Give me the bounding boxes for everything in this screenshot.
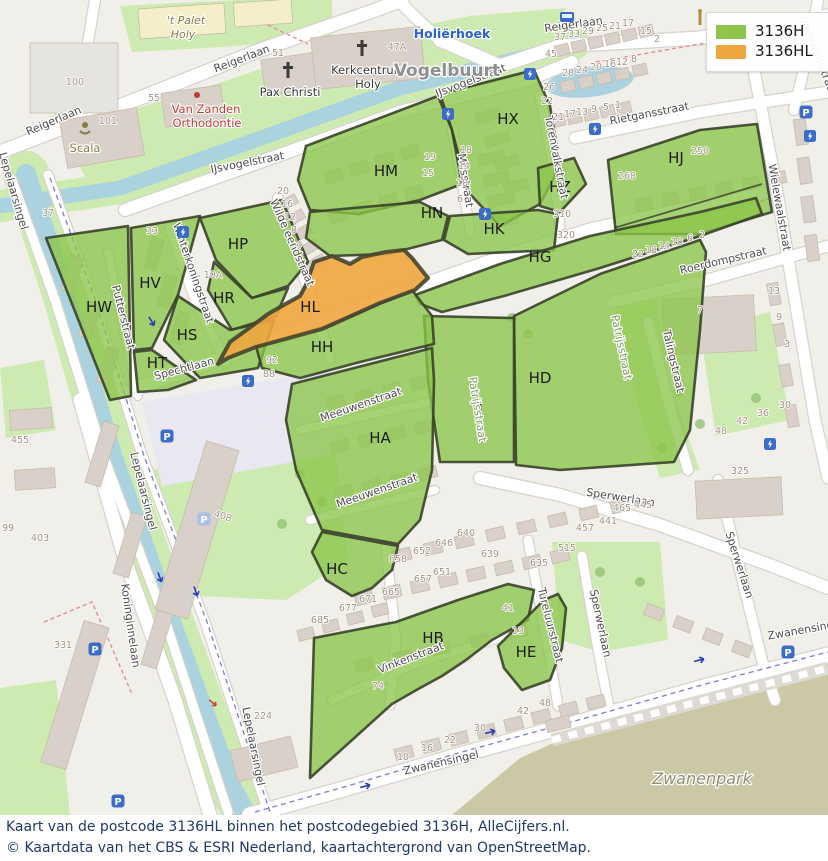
map-container: HWHVHPHRHSHTHMHXHZHNHKHJHGHDHHHHAHCHBHEH… <box>0 0 828 815</box>
house-number: 42 <box>736 416 748 427</box>
house-number: 19 <box>424 152 436 163</box>
house-number: 9 <box>776 312 782 323</box>
house-number: 325 <box>731 466 749 477</box>
poi-label: Holy <box>355 77 381 91</box>
house-number: 685 <box>311 615 329 626</box>
house-number: 331 <box>54 640 72 651</box>
ev-charging-icon <box>442 108 454 120</box>
house-number: 652 <box>413 546 431 557</box>
poi-label: Orthodontie <box>172 116 241 130</box>
caption-line-2: © Kaartdata van het CBS & ESRI Nederland… <box>6 838 828 859</box>
house-number: 22 <box>541 96 553 107</box>
area-label-HV: HV <box>139 274 161 292</box>
legend-label: 3136HL <box>755 43 813 60</box>
house-number: 10A <box>204 270 223 281</box>
parking-icon: P <box>89 643 102 656</box>
house-number: 100 <box>66 77 84 88</box>
house-number: 51 <box>272 48 284 59</box>
house-number: 99 <box>2 523 14 534</box>
building <box>9 408 52 431</box>
poi-label: Holy <box>171 28 196 41</box>
area-label-HG: HG <box>529 248 552 266</box>
house-number: 92 <box>266 355 278 366</box>
legend-swatch-green <box>716 25 746 39</box>
house-number: 646 <box>435 538 453 549</box>
ev-charging-icon <box>764 438 776 450</box>
house-number: 3 <box>784 339 790 350</box>
ev-charging-icon <box>177 226 189 238</box>
bus-stop-icon <box>560 12 574 22</box>
house-number: 48 <box>539 698 551 709</box>
poi-label: 't Palet <box>167 14 206 27</box>
parking-icon: P <box>112 795 125 808</box>
house-number: 14 <box>458 161 470 172</box>
building <box>233 0 293 27</box>
house-number: 515 <box>558 543 576 554</box>
area-label-HA: HA <box>369 429 391 447</box>
house-number: 17 <box>564 109 576 120</box>
house-number: 16 <box>604 59 616 70</box>
house-number: 17 <box>622 18 634 29</box>
poi-label: Pax Christi <box>260 85 321 99</box>
parking-letter: P <box>200 515 207 526</box>
house-number: 9 <box>591 104 597 115</box>
poi-dot <box>194 92 200 98</box>
poi-label: Zwanenpark <box>651 769 753 788</box>
building <box>695 477 783 519</box>
house-number: 268 <box>618 171 636 182</box>
house-number: 224 <box>254 711 272 722</box>
area-label-HD: HD <box>529 369 552 387</box>
signal-pole-icon <box>698 9 702 25</box>
house-number: 20 <box>277 186 289 197</box>
house-number: 2 <box>699 230 705 241</box>
house-number: 14 <box>658 241 670 252</box>
house-number: 8 <box>291 225 297 236</box>
poi-label: Holiërhoek <box>414 26 491 41</box>
house-number: 10 <box>397 752 409 763</box>
house-number: 12 <box>284 212 296 223</box>
area-label-HH: HH <box>311 338 334 356</box>
house-number: 20 <box>590 62 602 73</box>
house-number: 33 <box>146 226 158 237</box>
house-number: 5 <box>603 102 609 113</box>
house-number: 48 <box>715 426 727 437</box>
house-number: 18 <box>460 145 472 156</box>
house-number: 658 <box>389 554 407 565</box>
legend-label: 3136H <box>755 23 804 40</box>
house-number: 41 <box>502 603 514 614</box>
house-number: 29 <box>582 26 594 37</box>
house-number: 6 <box>457 194 463 205</box>
house-number: 665 <box>382 587 400 598</box>
ev-charging-icon <box>804 130 816 142</box>
tree <box>595 567 605 577</box>
house-number: 15 <box>640 26 652 37</box>
house-number: 13 <box>576 107 588 118</box>
house-number: 74 <box>372 681 384 692</box>
parking-letter: P <box>114 797 121 808</box>
house-number: 28 <box>562 68 574 79</box>
house-number: 25 <box>596 23 608 34</box>
house-number: 250 <box>691 146 709 157</box>
house-number: 15 <box>422 168 434 179</box>
area-label-HS: HS <box>177 326 198 344</box>
house-number: 677 <box>339 603 357 614</box>
house-number: 441 <box>599 516 617 527</box>
house-number: 671 <box>359 594 377 605</box>
parking-letter: P <box>163 432 170 443</box>
tree <box>635 577 645 587</box>
house-number: 22 <box>444 735 456 746</box>
house-number: 21 <box>552 112 564 123</box>
parking-icon: P <box>161 430 174 443</box>
house-number: 37 <box>554 32 566 43</box>
area-label-HM: HM <box>374 162 398 180</box>
house-number: 657 <box>414 574 432 585</box>
house-number: 320 <box>557 230 575 241</box>
building <box>14 468 55 491</box>
parking-letter: P <box>91 645 98 656</box>
tree <box>695 419 705 429</box>
house-number: 24 <box>576 65 588 76</box>
house-number: 22 <box>632 249 644 260</box>
ev-charging-icon <box>524 68 536 80</box>
house-number: 47A <box>388 42 407 53</box>
house-number: 26 <box>543 82 555 93</box>
area-label-HP: HP <box>228 235 248 253</box>
house-number: 465 <box>613 503 631 514</box>
map-caption: Kaart van de postcode 3136HL binnen het … <box>0 815 828 861</box>
area-label-HL: HL <box>300 298 320 316</box>
area-label-HW: HW <box>86 298 112 316</box>
parking-letter: P <box>784 648 791 659</box>
parking-icon: P <box>782 646 795 659</box>
tree <box>277 519 287 529</box>
house-number: 4 <box>296 240 302 251</box>
house-number: 457 <box>576 523 594 534</box>
house-number: 640 <box>457 528 475 539</box>
house-number: 33 <box>568 29 580 40</box>
parking-letter: P <box>802 108 809 119</box>
house-number: 13 <box>512 626 524 637</box>
house-number: 1 <box>615 100 621 111</box>
house-number: 639 <box>481 549 499 560</box>
house-number: 30 <box>779 400 791 411</box>
parking-icon: P <box>800 106 813 119</box>
house-number: 455 <box>11 435 29 446</box>
house-number: 310 <box>553 209 571 220</box>
house-number: 30 <box>474 723 486 734</box>
house-number: 16 <box>281 199 293 210</box>
area-label-HK: HK <box>483 220 505 238</box>
house-number: 445 <box>634 500 652 511</box>
house-number: 10 <box>456 178 468 189</box>
area-label-HX: HX <box>497 110 519 128</box>
ev-charging-icon <box>589 123 601 135</box>
house-number: 403 <box>31 533 49 544</box>
house-number: 12 <box>616 57 628 68</box>
area-label-HJ: HJ <box>668 149 684 167</box>
house-number: 6 <box>687 233 693 244</box>
house-number: 635 <box>530 558 548 569</box>
legend-item-3136HL: 3136HL <box>716 43 828 60</box>
house-number: 8 <box>631 54 637 65</box>
house-number: 10 <box>671 237 683 248</box>
postcode-map-page: HWHVHPHRHSHTHMHXHZHNHKHJHGHDHHHHAHCHBHEH… <box>0 0 828 861</box>
house-number: 16 <box>421 743 433 754</box>
area-label-HR: HR <box>213 289 235 307</box>
house-number: 18 <box>645 245 657 256</box>
house-number: 2 <box>654 34 660 45</box>
poi-label: Scala <box>70 141 101 155</box>
poi-label: Van Zanden <box>172 102 241 116</box>
legend-swatch-orange <box>716 45 746 59</box>
map-legend: 3136H 3136HL <box>706 12 828 72</box>
legend-item-3136H: 3136H <box>716 23 828 40</box>
house-number: 21 <box>609 21 621 32</box>
tree <box>751 393 761 403</box>
house-number: 55 <box>148 93 160 104</box>
house-number: 37 <box>42 208 54 219</box>
house-number: 101 <box>99 116 117 127</box>
area-label-HN: HN <box>421 204 444 222</box>
house-number: 45 <box>545 49 557 60</box>
map-canvas: HWHVHPHRHSHTHMHXHZHNHKHJHGHDHHHHAHCHBHEH… <box>0 0 828 815</box>
area-label-HC: HC <box>326 560 348 578</box>
house-number: 36 <box>757 408 769 419</box>
house-number: 651 <box>433 567 451 578</box>
caption-line-1: Kaart van de postcode 3136HL binnen het … <box>6 817 828 838</box>
house-number: 13 <box>768 286 780 297</box>
house-number: 42 <box>517 706 529 717</box>
house-number: 88 <box>263 369 275 380</box>
poi-label: Vogelbuurt <box>394 61 500 81</box>
parking-icon: P <box>198 513 211 526</box>
area-label-HE: HE <box>516 643 537 661</box>
ev-charging-icon <box>242 375 254 387</box>
ev-charging-icon <box>479 208 491 220</box>
house-number: 7 <box>697 305 703 316</box>
